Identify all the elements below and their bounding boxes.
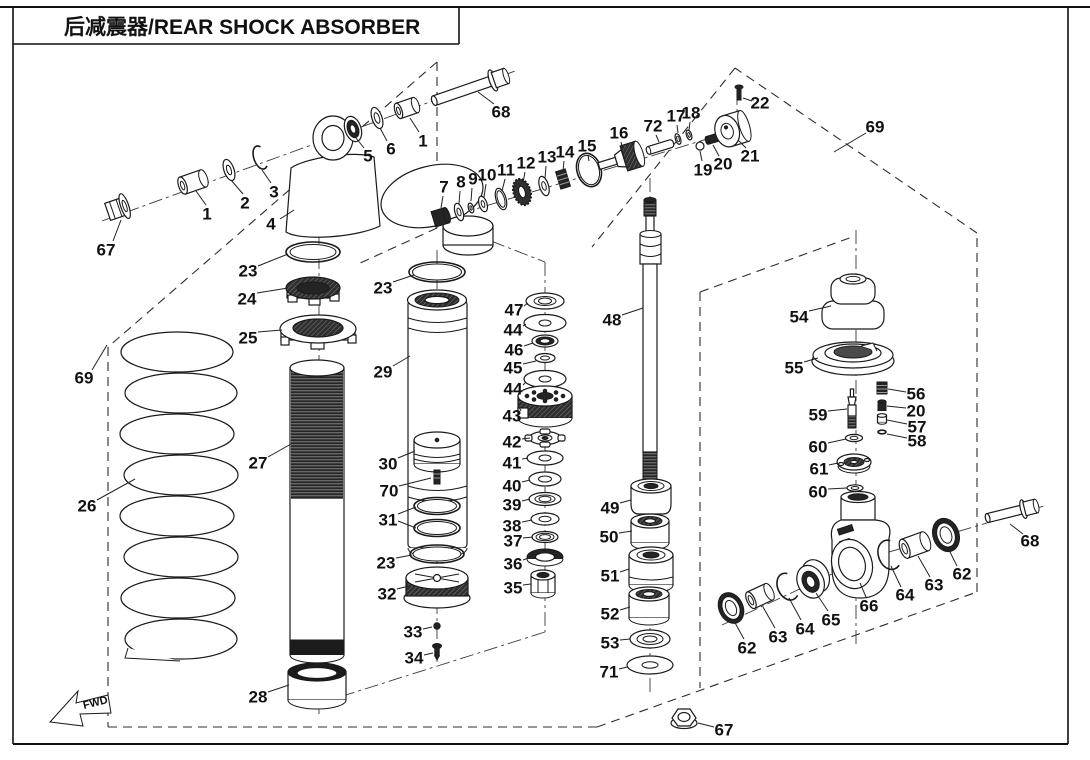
leader-line (410, 118, 419, 132)
part-washer-37 (532, 532, 558, 543)
part-label-15: 15 (578, 137, 597, 156)
part-label-42: 42 (503, 433, 522, 452)
leader-line (620, 500, 631, 503)
centerlines (102, 70, 1044, 714)
part-plug-57 (878, 414, 887, 425)
part-label-19: 19 (694, 161, 713, 180)
part-label-5: 5 (363, 147, 372, 166)
leader-line (887, 434, 907, 438)
part-label-70: 70 (380, 482, 399, 501)
part-ring-18 (685, 129, 693, 140)
part-washer-38 (531, 513, 559, 525)
leader-line (816, 593, 828, 611)
leader-line (424, 653, 433, 655)
part-washer-46 (532, 335, 558, 347)
fwd-marker: FWD (50, 691, 111, 726)
part-label-50: 50 (600, 528, 619, 547)
leader-line (522, 520, 532, 522)
part-label-32: 32 (378, 585, 397, 604)
leader-line (393, 275, 414, 282)
part-needle-59 (848, 389, 856, 428)
part-bleed-screw-34 (433, 644, 442, 661)
part-label-55: 55 (785, 359, 804, 378)
part-label-51: 51 (601, 567, 620, 586)
part-washer-44a (524, 315, 566, 332)
leader-line (689, 122, 690, 130)
part-washer-41 (527, 451, 563, 465)
part-label-33: 33 (404, 623, 423, 642)
leader-line (700, 151, 702, 161)
parts-catalog-page: 后减震器/REAR SHOCK ABSORBER (0, 0, 1090, 760)
leader-line (834, 133, 866, 152)
leader-line (734, 621, 744, 639)
leader-line (620, 639, 630, 640)
part-washer-45 (535, 354, 555, 363)
part-label-31: 31 (379, 511, 398, 530)
leader-line (231, 180, 243, 194)
part-label-60: 60 (809, 483, 828, 502)
part-label-22: 22 (751, 94, 770, 113)
part-set-screw-20b (878, 400, 886, 411)
part-label-23: 23 (377, 554, 396, 573)
part-label-69: 69 (866, 118, 885, 137)
part-label-24: 24 (238, 290, 257, 309)
leader-line (656, 135, 659, 142)
part-label-53: 53 (601, 634, 620, 653)
part-label-3: 3 (269, 183, 278, 202)
part-label-63: 63 (925, 576, 944, 595)
part-washer-13 (537, 175, 551, 197)
part-label-71: 71 (600, 663, 619, 682)
leader-line (92, 345, 107, 370)
part-washer-40 (529, 472, 561, 486)
part-label-13: 13 (538, 148, 557, 167)
leader-line (113, 220, 121, 241)
leader-line (258, 330, 282, 332)
leader-line (789, 598, 801, 620)
part-valve-61 (837, 454, 871, 473)
part-spring-14 (556, 169, 571, 189)
part-label-64: 64 (896, 586, 915, 605)
part-label-54: 54 (790, 308, 809, 327)
leader-line (828, 488, 847, 489)
part-label-2: 2 (240, 194, 249, 213)
part-screw-22 (735, 85, 743, 100)
part-washer-10 (477, 195, 489, 213)
part-label-49: 49 (601, 499, 620, 518)
part-label-68: 68 (492, 103, 511, 122)
part-washer-53 (630, 630, 670, 648)
part-oring-23-reservoir (409, 262, 465, 282)
leader-line (523, 537, 533, 538)
part-label-6: 6 (386, 140, 395, 159)
part-label-67: 67 (715, 721, 734, 740)
part-label-1: 1 (418, 132, 427, 151)
part-label-68: 68 (1021, 532, 1040, 551)
part-label-41: 41 (503, 454, 522, 473)
leader-line (620, 569, 629, 572)
part-label-23: 23 (239, 262, 258, 281)
part-label-4: 4 (266, 215, 276, 234)
part-label-43: 43 (503, 407, 522, 426)
part-adjuster-gear-12 (510, 177, 534, 208)
part-bump-cup-49 (631, 479, 671, 514)
part-label-66: 66 (860, 597, 879, 616)
part-spacer-1-right (393, 96, 422, 119)
part-label-35: 35 (504, 579, 523, 598)
part-washer-2 (221, 158, 238, 182)
part-lock-nut-24 (286, 277, 340, 305)
part-flange-nut-67-top (103, 192, 132, 224)
leader-line (828, 409, 847, 411)
part-snap-ring-64-left (773, 572, 799, 604)
part-label-67: 67 (97, 241, 116, 260)
part-oring-60b (847, 485, 863, 491)
leader-line (828, 439, 846, 443)
part-label-12: 12 (517, 154, 536, 173)
part-label-11: 11 (497, 161, 515, 180)
leader-line (763, 607, 775, 628)
part-label-69: 69 (75, 369, 94, 388)
diagram-canvas: 后减震器/REAR SHOCK ABSORBER (0, 0, 1090, 760)
parts-layer (103, 65, 1040, 729)
part-label-14: 14 (556, 143, 575, 162)
part-reservoir-29 (408, 290, 468, 558)
part-bushing-51 (629, 547, 673, 593)
part-label-34: 34 (405, 649, 424, 668)
leader-line (196, 191, 206, 205)
part-label-48: 48 (603, 311, 622, 330)
part-piston-43 (518, 386, 572, 427)
part-label-23: 23 (374, 279, 393, 298)
part-label-58: 58 (908, 432, 927, 451)
part-label-45: 45 (504, 359, 523, 378)
leader-line (502, 179, 505, 191)
part-adjuster-knob-16 (595, 140, 647, 178)
part-label-60: 60 (809, 438, 828, 457)
part-label-25: 25 (239, 329, 258, 348)
part-bushing-1-left (176, 169, 210, 196)
part-spring-56 (877, 382, 887, 394)
leader-line (677, 125, 678, 133)
part-label-44: 44 (504, 321, 523, 340)
part-label-36: 36 (504, 555, 523, 574)
leader-line (887, 420, 907, 424)
part-label-61: 61 (810, 460, 829, 479)
leader-line (268, 685, 289, 692)
leader-line (524, 343, 533, 346)
part-oring-15 (573, 150, 606, 190)
part-label-40: 40 (503, 477, 522, 496)
part-ring-11 (493, 187, 509, 211)
part-spring-cup-28 (288, 663, 346, 709)
part-label-37: 37 (504, 532, 523, 551)
leader-line (619, 667, 627, 669)
leader-line (523, 361, 536, 364)
part-snap-ring-3 (250, 145, 267, 171)
part-bushing-63-left (744, 582, 777, 610)
part-oring-58 (878, 430, 886, 434)
part-label-62: 62 (953, 565, 972, 584)
leader-line (258, 254, 288, 266)
part-washer-71 (627, 656, 673, 674)
part-seal-52 (629, 587, 669, 625)
part-seal-62-right (928, 515, 964, 556)
leader-line (523, 584, 531, 585)
part-reservoir-piston-30 (414, 432, 460, 472)
part-bump-stop-54 (822, 274, 884, 329)
part-coil-spring-26 (120, 332, 238, 661)
part-shim-stack (518, 293, 572, 598)
part-piston-ring-31a (414, 498, 460, 515)
part-label-7: 7 (439, 178, 448, 197)
part-label-28: 28 (249, 688, 268, 707)
part-label-1: 1 (202, 205, 211, 224)
part-label-52: 52 (601, 605, 620, 624)
part-label-18: 18 (682, 104, 701, 123)
part-screw-70 (434, 470, 440, 484)
part-washer-6 (369, 106, 386, 130)
part-floating-piston-32 (404, 567, 470, 608)
part-label-16: 16 (610, 124, 629, 143)
part-label-72: 72 (644, 117, 663, 136)
part-knob-cap-21 (711, 109, 754, 150)
part-nut-35 (531, 570, 555, 598)
leader-line (522, 480, 530, 482)
part-label-47: 47 (505, 301, 524, 320)
part-spring-seat-55 (812, 342, 894, 375)
leader-line (268, 444, 291, 457)
leader-line (97, 479, 135, 500)
part-label-63: 63 (769, 628, 788, 647)
part-washer-44b (524, 371, 566, 388)
part-label-20: 20 (714, 155, 733, 174)
part-label-46: 46 (505, 341, 524, 360)
part-label-65: 65 (822, 611, 841, 630)
part-oring-33 (434, 623, 440, 629)
leader-line (888, 389, 906, 392)
leader-line (829, 463, 838, 465)
leader-line (698, 723, 714, 727)
part-label-29: 29 (374, 363, 393, 382)
part-label-30: 30 (379, 455, 398, 474)
part-oring-23-top (286, 242, 340, 262)
part-piston-rod-48 (640, 198, 661, 484)
part-label-59: 59 (809, 406, 828, 425)
leader-line (396, 555, 412, 558)
part-flange-nut-67-bottom (671, 709, 697, 729)
part-piston-ring-31b (414, 520, 460, 537)
leader-line (257, 288, 288, 293)
leader-line (887, 406, 906, 408)
leader-line (484, 184, 486, 197)
part-label-44: 44 (504, 380, 523, 399)
leader-line (619, 531, 632, 533)
part-shock-body-27 (290, 360, 344, 663)
part-label-8: 8 (456, 173, 465, 192)
part-washer-47 (526, 293, 564, 309)
leader-line (423, 627, 432, 629)
part-castle-washer-42 (525, 429, 565, 447)
page-title: 后减震器/REAR SHOCK ABSORBER (64, 15, 420, 39)
part-label-39: 39 (503, 496, 522, 515)
part-label-9: 9 (468, 170, 477, 189)
part-pin-72 (645, 139, 674, 155)
part-label-21: 21 (741, 147, 760, 166)
part-cup-washer-36 (527, 549, 563, 566)
part-washer-39 (529, 493, 561, 506)
part-oring-60a (846, 434, 863, 441)
leader-line (545, 166, 546, 178)
part-adjust-nut-25 (280, 315, 356, 349)
part-label-62: 62 (738, 639, 757, 658)
part-label-64: 64 (796, 620, 815, 639)
part-seal-50 (631, 514, 669, 550)
leader-line (622, 308, 643, 315)
leader-line (523, 382, 526, 385)
part-bushing-63-right (897, 530, 933, 559)
part-label-27: 27 (249, 454, 268, 473)
part-bolt-68-right (983, 496, 1041, 528)
part-label-10: 10 (478, 166, 497, 185)
leader-line (918, 556, 930, 577)
part-oring-23-piston (410, 545, 464, 563)
part-seal-62-left (713, 588, 748, 627)
part-label-26: 26 (78, 497, 97, 516)
part-ball-19 (696, 142, 704, 150)
leader-line (262, 170, 271, 183)
